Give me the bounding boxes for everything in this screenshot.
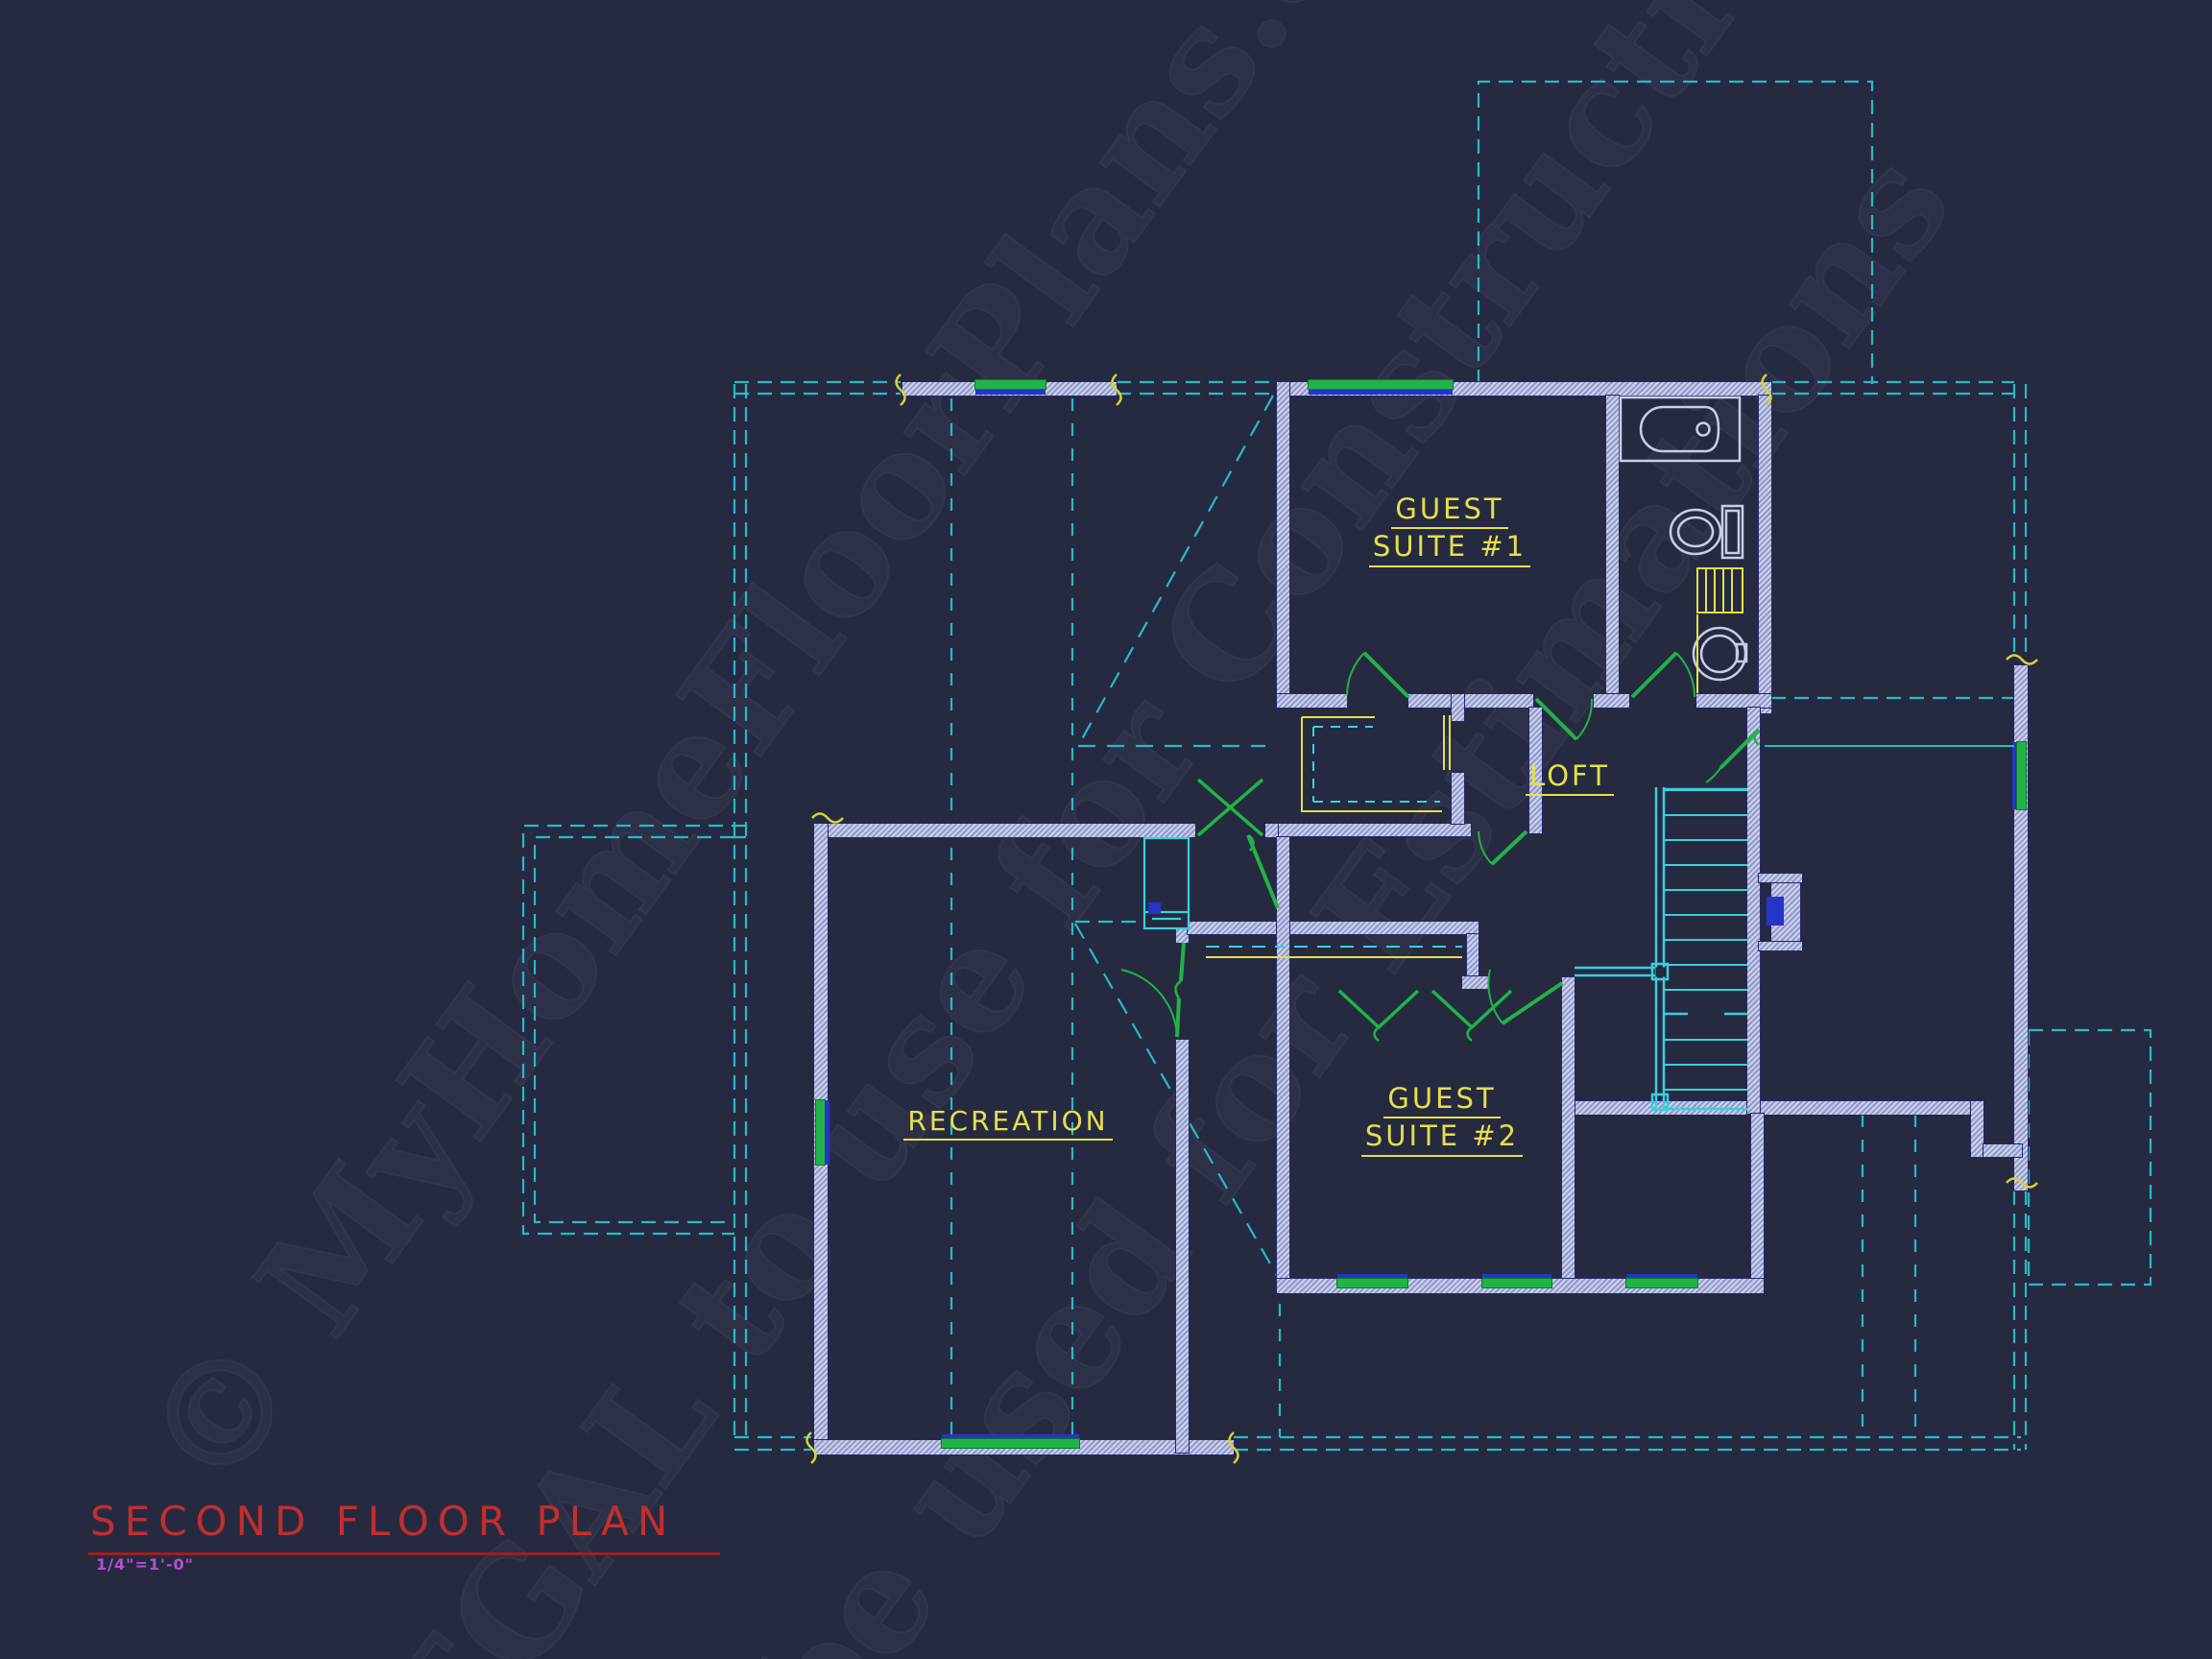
wall-segment [1408,694,1533,708]
wall-segment [1452,694,1464,721]
door-strip [1248,835,1278,908]
window [816,1100,825,1165]
room-label-line: GUEST [1391,492,1507,529]
wall-segment [1279,824,1471,836]
wall-segment [1467,934,1479,976]
wall-segment [1265,824,1279,837]
room-label-line: SUITE #2 [1361,1118,1523,1156]
wall-segment [1751,1114,1764,1291]
sink [1694,628,1746,680]
wall-segment [1747,708,1760,1114]
wall-segment [1452,773,1464,824]
room-label-guest-suite-2: GUEST SUITE #2 [1356,1081,1528,1157]
room-label-recreation: RECREATION [902,1104,1114,1141]
window [2017,742,2026,809]
wall-segment [1277,837,1289,1279]
wall-segment [1462,976,1488,989]
window [1482,1279,1551,1287]
newel-post [1656,968,1665,976]
wall-segment [1575,1101,1971,1115]
window [942,1439,1079,1448]
door-suite1 [1347,653,1408,697]
room-label-guest-suite-1: GUEST SUITE #1 [1363,492,1536,567]
wall-segment [1594,694,1629,708]
room-label-line: LOFT [1526,758,1614,796]
wall-segment [1971,1101,1984,1157]
roof-rect-right-annex [2029,1030,2151,1285]
window-sill [825,1100,829,1165]
wall-segment [1984,1144,2022,1157]
stair-break-gap [1665,1006,1747,1022]
window-sill [975,390,1046,395]
window [1309,380,1453,389]
wall-segment [828,824,1195,837]
room-label-line: SUITE #1 [1369,529,1530,566]
wall-segment [1277,382,1289,708]
niche-chase [1767,897,1784,926]
window-sill [1309,390,1453,395]
wall-segment [1277,694,1347,708]
door-recreation [1121,943,1184,1037]
window [975,380,1046,389]
wall-segment [1606,396,1619,708]
wall-segment [1188,922,1479,934]
stair-treads [1665,789,1747,1110]
floor-plan-canvas: © MyHomeFloorPlans.com ILLEGAL to use fo… [0,0,2212,1659]
window [1337,1279,1407,1287]
wall-segment [1562,977,1575,1279]
window [1626,1279,1697,1287]
room-label-loft: LOFT [1522,758,1618,796]
wall-segment [1759,396,1771,713]
door-suite2 [1488,970,1562,1023]
niche-wall [1759,942,1802,950]
room-label-line: RECREATION [903,1104,1112,1141]
drawing-scale: 1/4"=1'-0" [96,1555,194,1574]
wall-segment [1696,694,1771,708]
drawing-title: SECOND FLOOR PLAN [88,1498,720,1555]
wall-segment [1176,1040,1189,1453]
room-label-line: GUEST [1383,1081,1500,1118]
niche-wall [1759,874,1802,882]
